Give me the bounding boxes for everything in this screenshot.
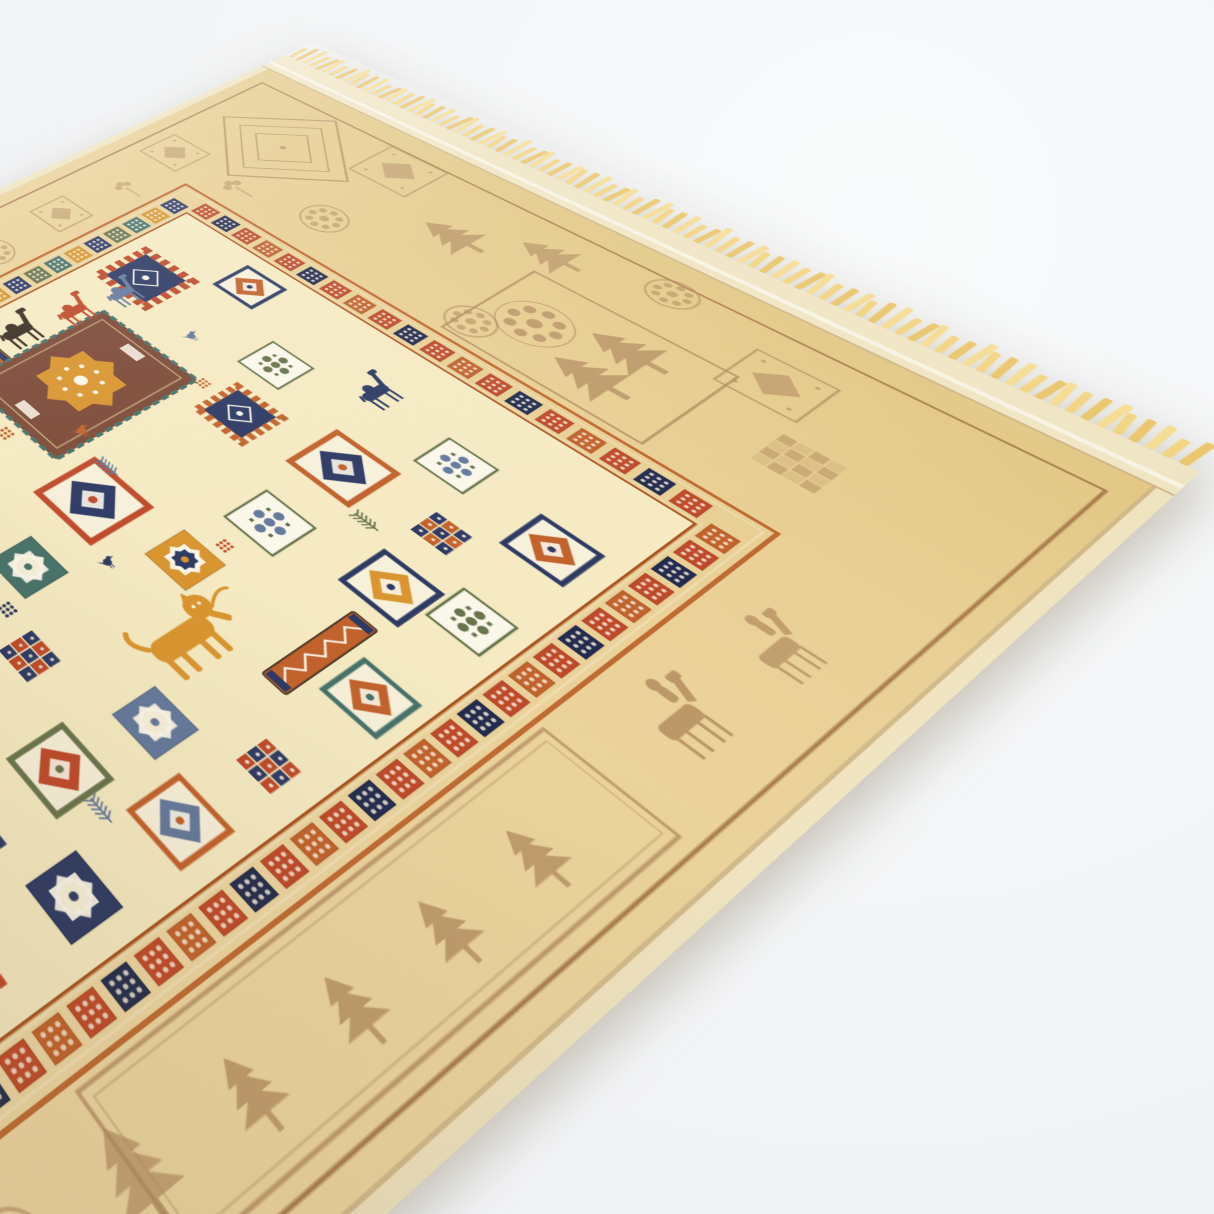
photo-background xyxy=(0,0,1214,1214)
rug-artwork xyxy=(0,42,1214,1214)
fringe-tassel xyxy=(295,48,320,61)
rug xyxy=(0,55,1200,1214)
fringe-tassel xyxy=(301,51,329,64)
fringe-tassel xyxy=(362,79,390,93)
fringe-tassel xyxy=(1161,438,1192,459)
fringe-tassel xyxy=(502,140,533,156)
